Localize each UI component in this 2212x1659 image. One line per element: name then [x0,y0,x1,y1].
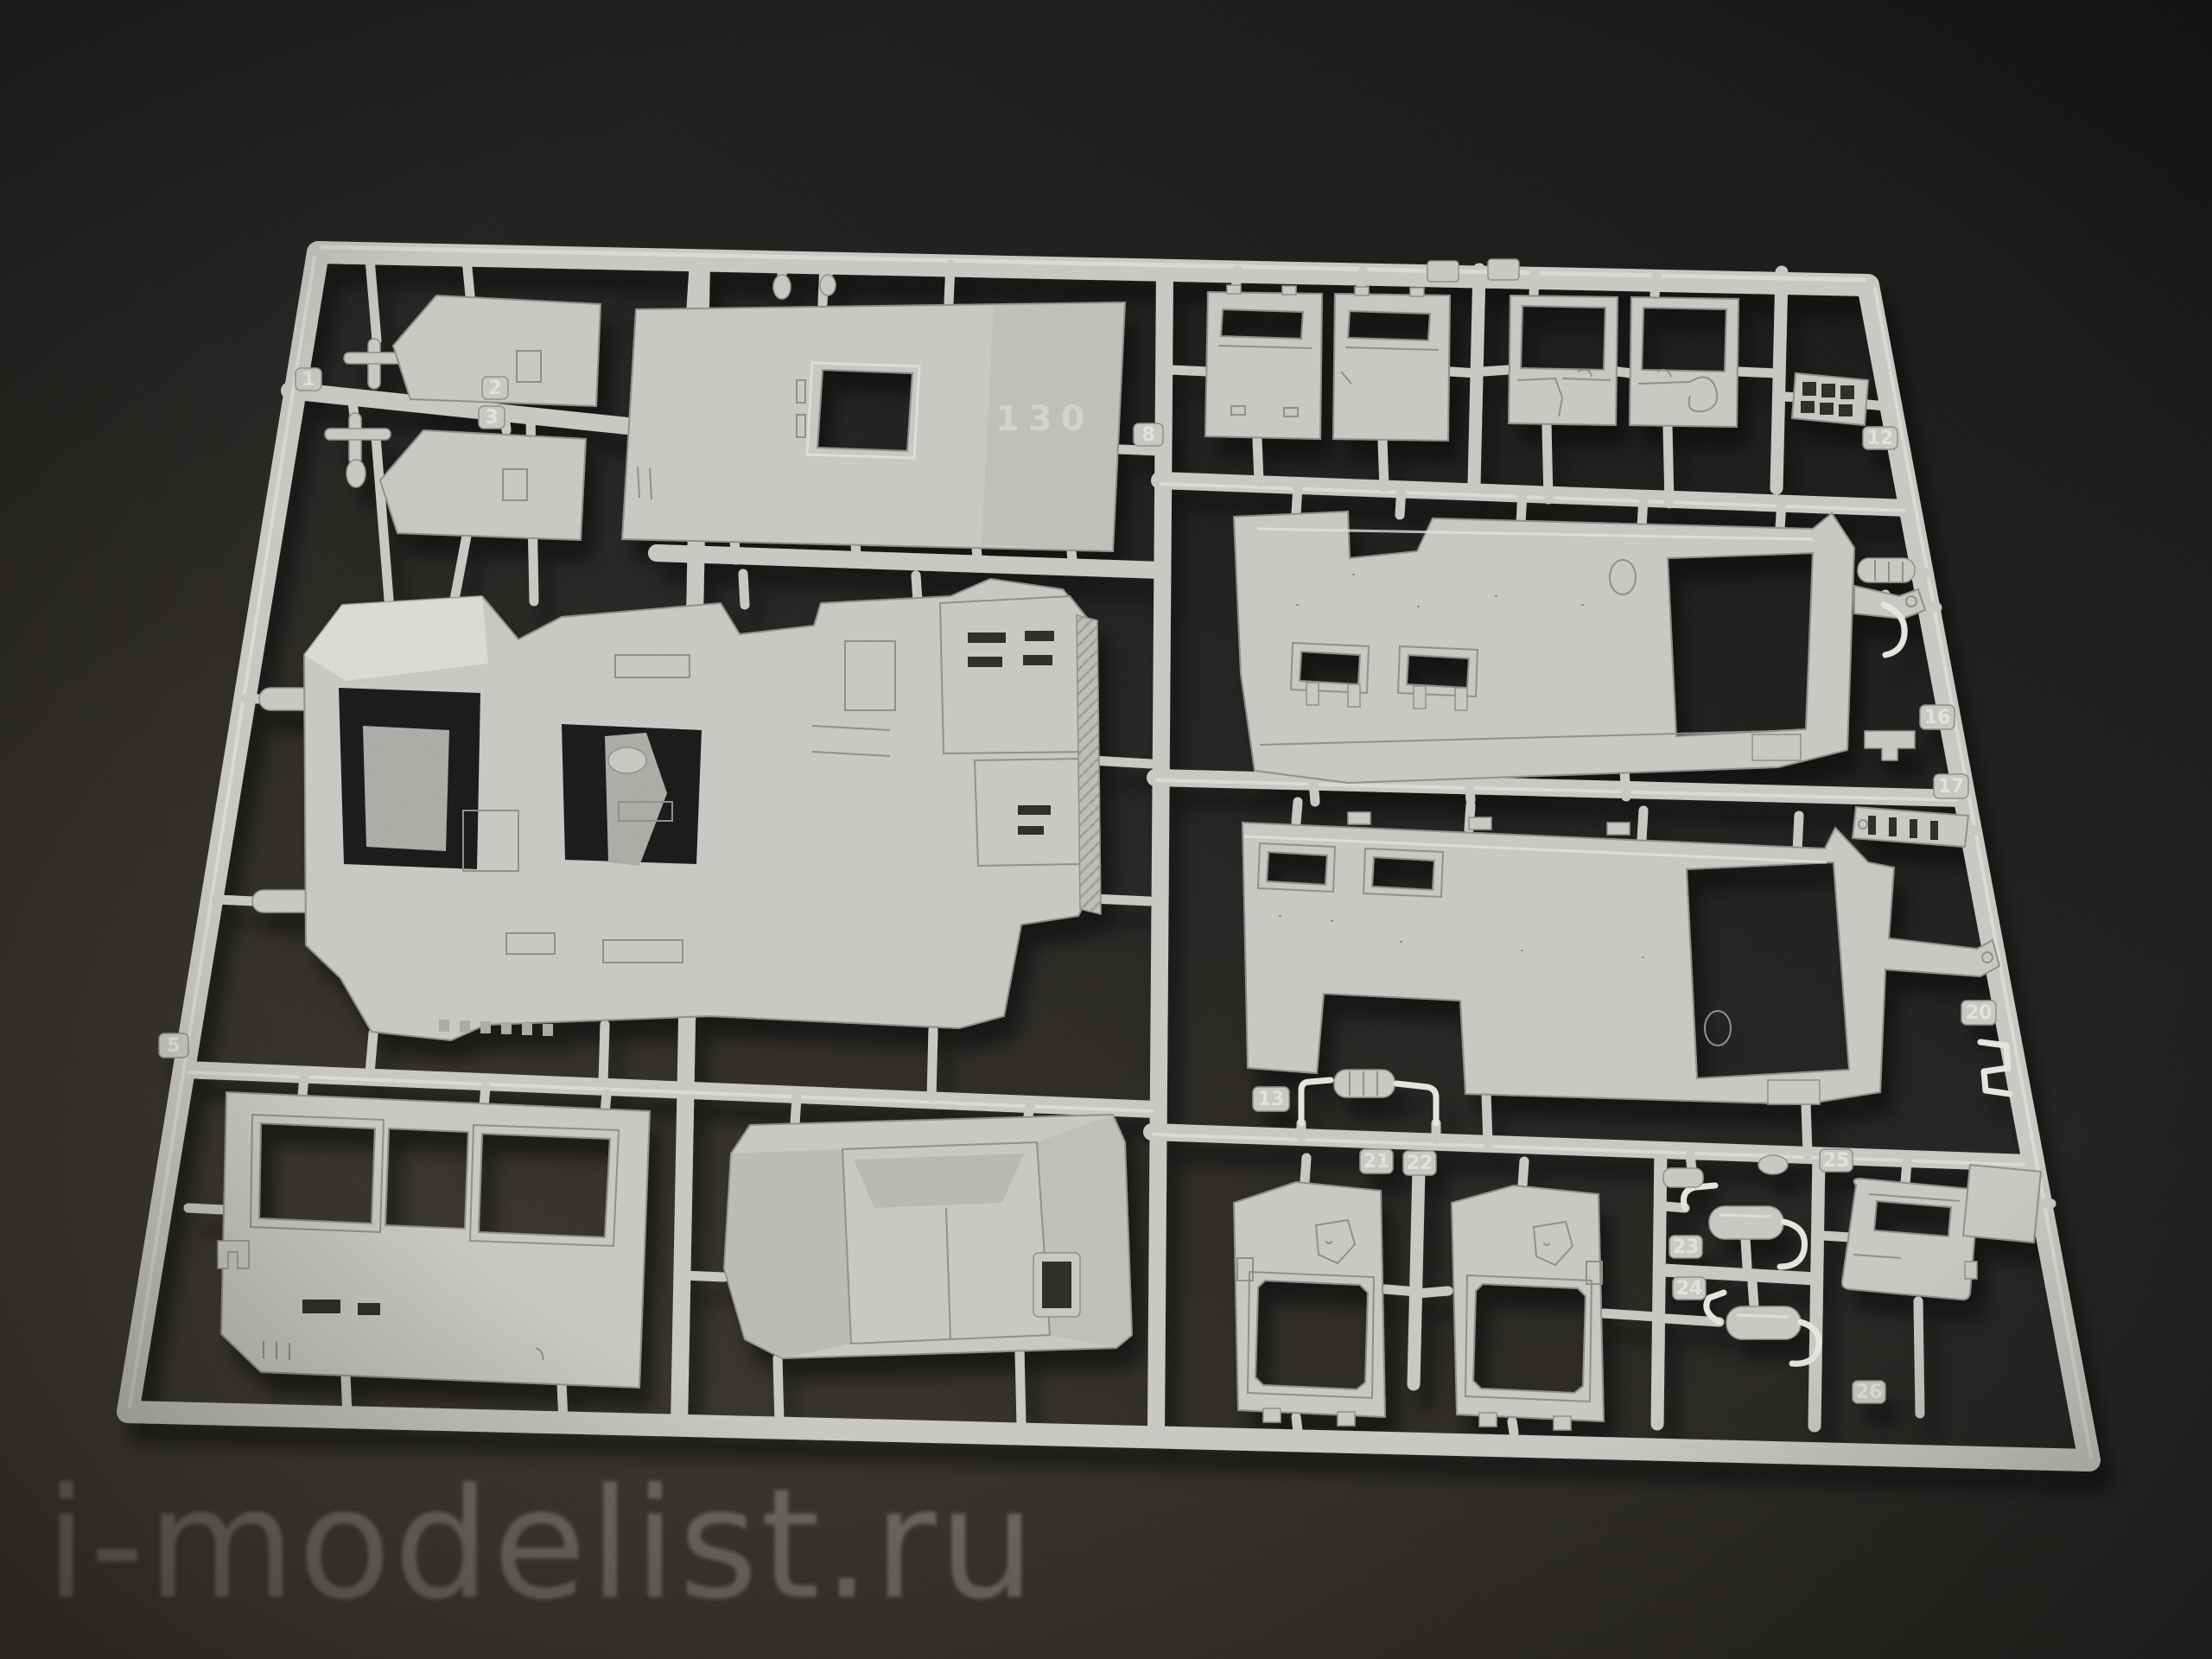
sprue-photo-canvas: i-modelist.ru [0,0,2212,1659]
photo-vignette [0,0,2212,1659]
photo-of-model-kit-sprue: i-modelist.ru [0,0,2212,1659]
